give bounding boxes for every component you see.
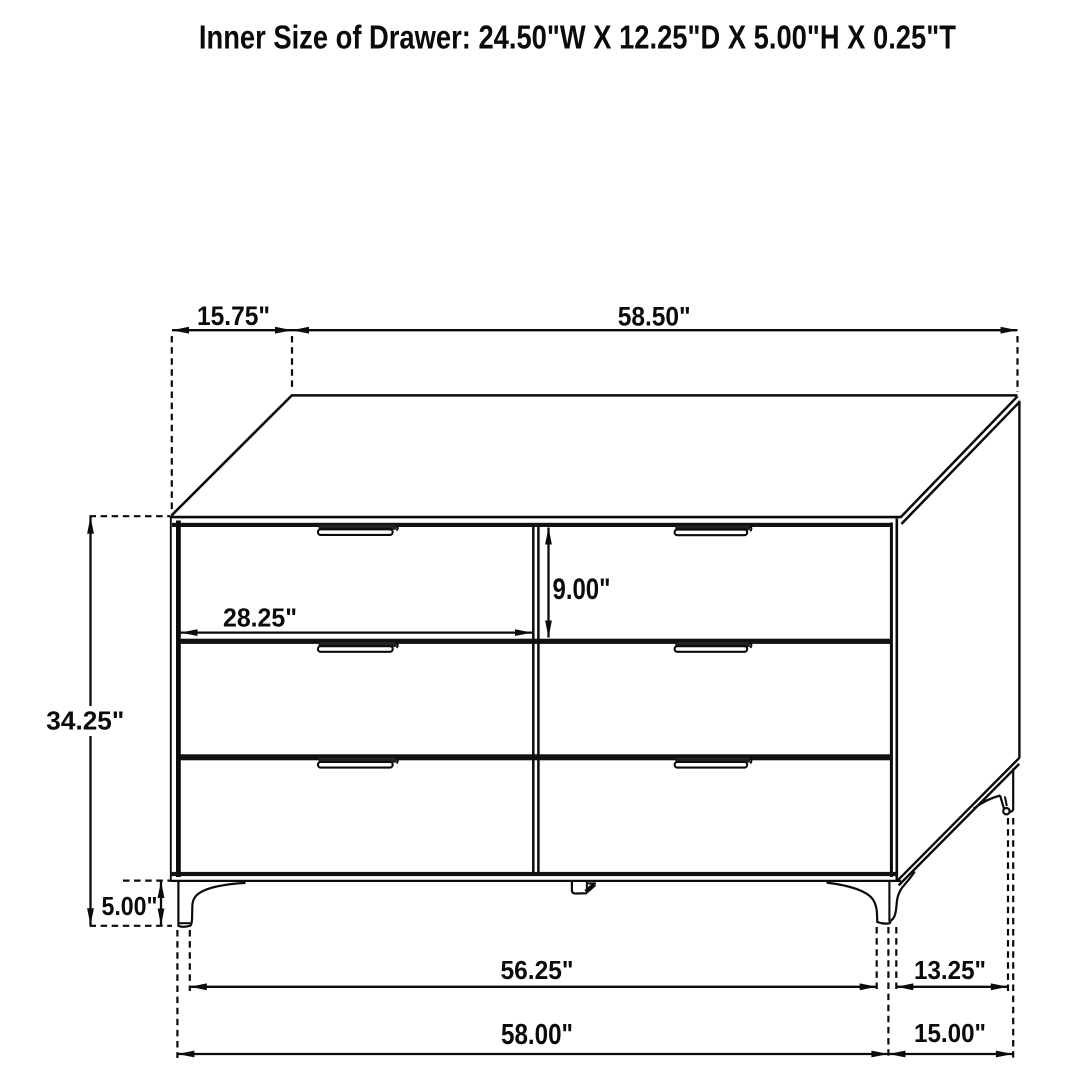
- svg-text:9.00": 9.00": [553, 573, 611, 606]
- svg-text:13.25": 13.25": [914, 955, 986, 985]
- svg-text:28.25": 28.25": [223, 603, 297, 633]
- svg-text:56.25": 56.25": [501, 955, 574, 985]
- svg-text:5.00": 5.00": [102, 891, 158, 921]
- svg-text:15.75": 15.75": [197, 301, 270, 331]
- svg-text:58.00": 58.00": [501, 1019, 573, 1051]
- svg-text:15.00": 15.00": [914, 1018, 986, 1048]
- svg-text:Inner Size of Drawer: 24.50"W: Inner Size of Drawer: 24.50"W X 12.25"D …: [199, 19, 956, 56]
- svg-text:34.25": 34.25": [46, 706, 124, 736]
- svg-text:58.50": 58.50": [618, 302, 691, 332]
